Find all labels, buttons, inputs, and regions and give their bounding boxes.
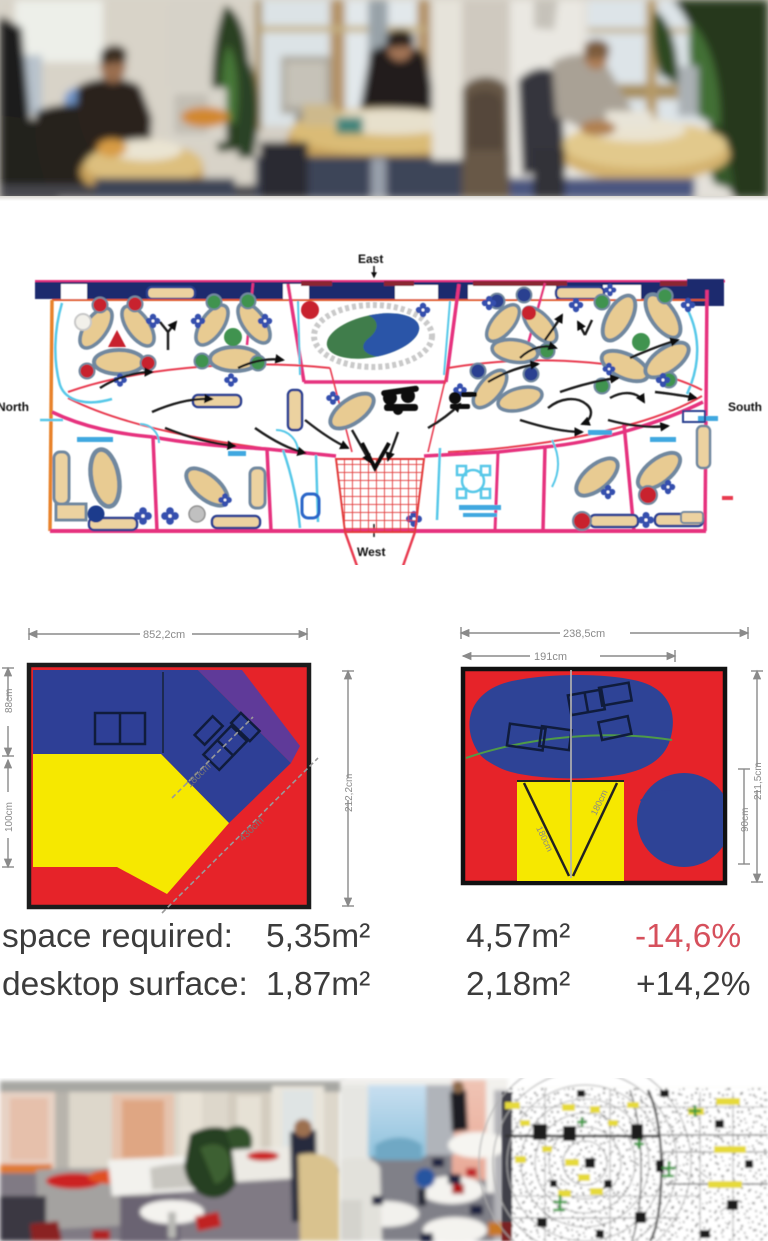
svg-text:238,5cm: 238,5cm — [563, 628, 605, 640]
svg-text:852,2cm: 852,2cm — [143, 629, 185, 641]
svg-text:North: North — [0, 400, 29, 414]
svg-text:211,5cm: 211,5cm — [753, 762, 764, 800]
svg-text:East: East — [358, 252, 383, 266]
svg-text:West: West — [357, 545, 385, 559]
svg-text:100cm: 100cm — [4, 802, 15, 832]
svg-text:90cm: 90cm — [740, 808, 751, 832]
svg-text:88cm: 88cm — [4, 689, 15, 713]
svg-text:South: South — [728, 400, 762, 414]
svg-text:212,2cm: 212,2cm — [344, 774, 355, 812]
svg-text:191cm: 191cm — [534, 651, 567, 663]
